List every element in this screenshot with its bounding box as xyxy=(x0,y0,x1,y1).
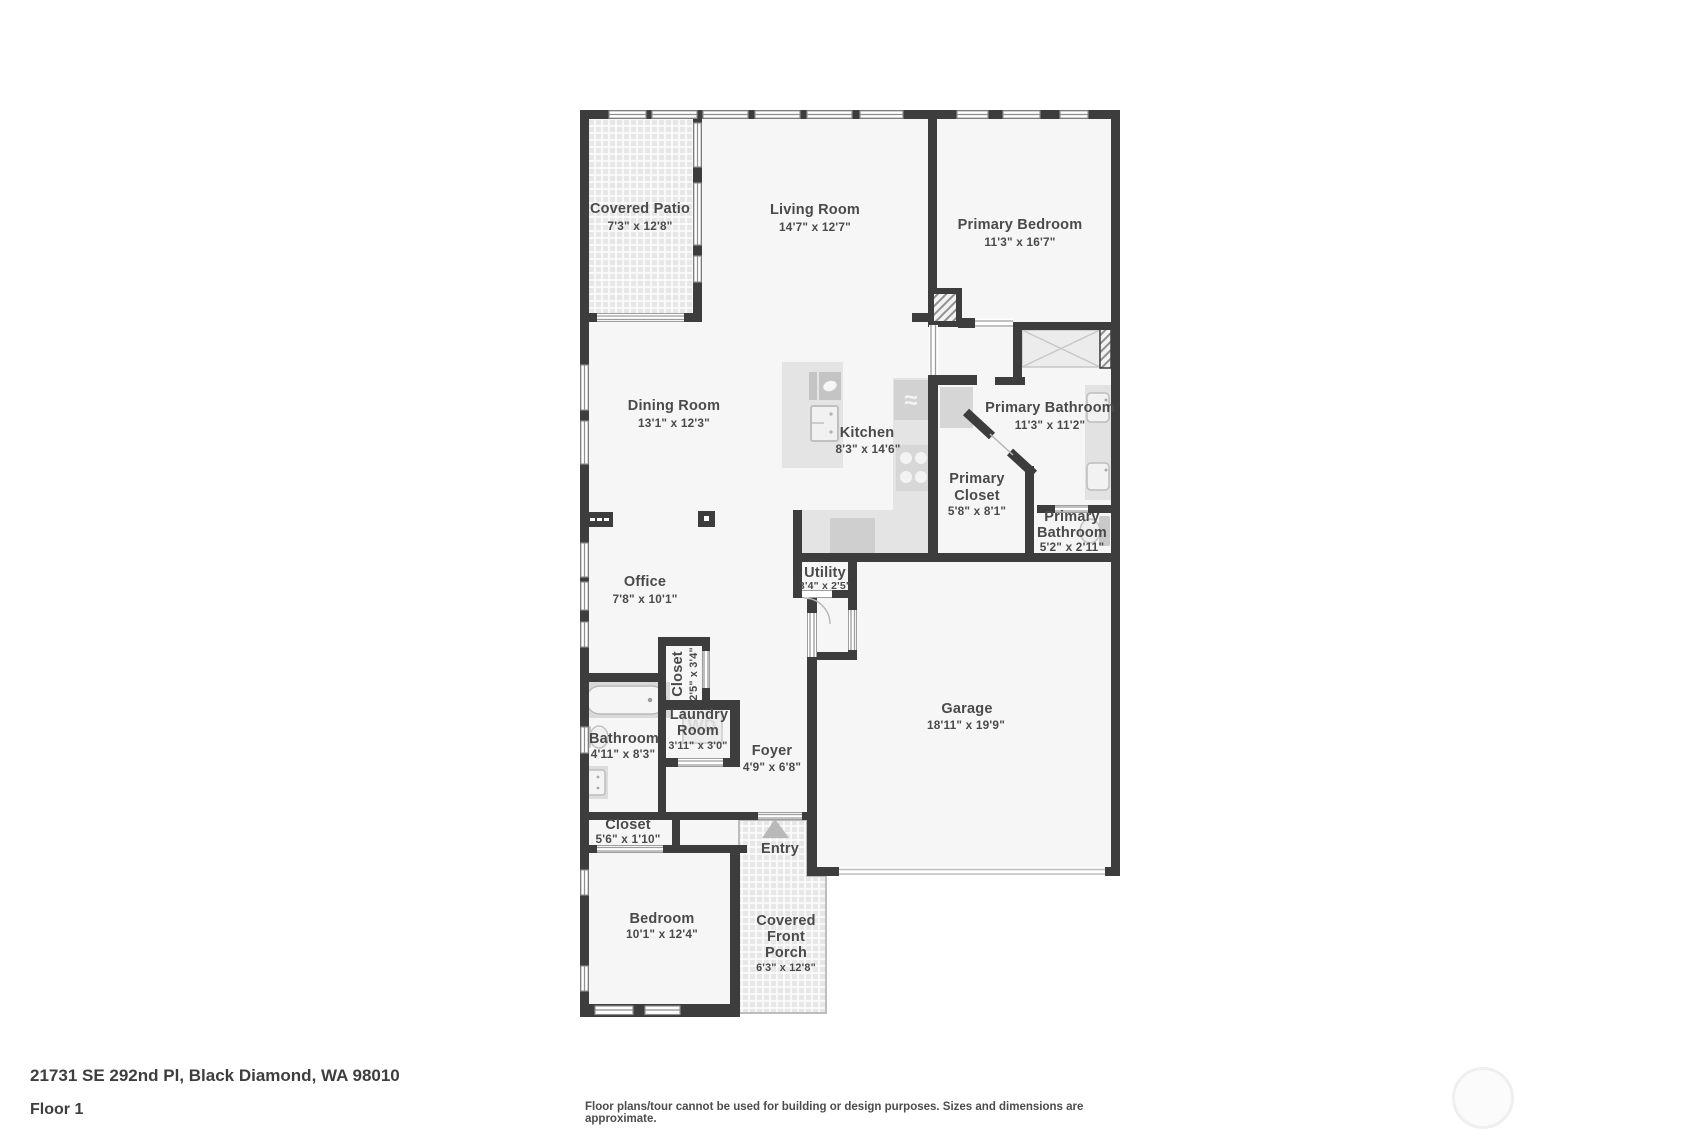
svg-text:Kitchen: Kitchen xyxy=(840,425,895,441)
svg-text:Primary: Primary xyxy=(949,471,1004,487)
svg-text:3'11" x 3'0": 3'11" x 3'0" xyxy=(668,740,727,752)
svg-text:Foyer: Foyer xyxy=(752,743,793,759)
svg-text:5'2" x 2'11": 5'2" x 2'11" xyxy=(1040,540,1104,554)
svg-text:2'5" x 3'4": 2'5" x 3'4" xyxy=(688,647,700,701)
room-label-kitchen: Kitchen 8'3" x 14'6" xyxy=(835,425,900,456)
svg-text:Primary Bedroom: Primary Bedroom xyxy=(958,217,1083,233)
svg-text:Office: Office xyxy=(624,574,666,590)
watermark-circle xyxy=(1452,1067,1514,1129)
floor-label: Floor 1 xyxy=(30,1101,83,1119)
room-label-closet: Closet 2'5" x 3'4" xyxy=(670,647,700,701)
column-post xyxy=(698,511,715,527)
svg-text:Covered: Covered xyxy=(756,913,815,929)
svg-text:Living Room: Living Room xyxy=(770,202,860,218)
svg-text:Closet: Closet xyxy=(954,488,1000,504)
svg-text:7'8" x 10'1": 7'8" x 10'1" xyxy=(612,592,677,606)
svg-text:Bathroom: Bathroom xyxy=(589,731,659,747)
svg-text:18'11" x 19'9": 18'11" x 19'9" xyxy=(927,718,1005,732)
svg-text:5'8" x 8'1": 5'8" x 8'1" xyxy=(948,504,1006,518)
room-label-primary-closet: Primary Closet 5'8" x 8'1" xyxy=(948,471,1006,518)
svg-text:6'3" x 12'8": 6'3" x 12'8" xyxy=(756,962,816,974)
room-label-entry: Entry xyxy=(761,841,799,857)
bathtub xyxy=(582,682,670,718)
floorplan-page: ≈ xyxy=(0,0,1697,1131)
svg-text:Porch: Porch xyxy=(765,945,807,961)
svg-text:Closet: Closet xyxy=(670,651,686,697)
shower xyxy=(1022,324,1111,368)
room-label-utility: Utility 3'4" x 2'5" xyxy=(799,565,851,592)
svg-text:3'4" x 2'5": 3'4" x 2'5" xyxy=(799,580,851,592)
room-label-bathroom: Bathroom 4'11" x 8'3" xyxy=(589,731,659,761)
closet-builtin xyxy=(940,387,973,428)
room-label-bedroom: Bedroom 10'1" x 12'4" xyxy=(626,911,698,941)
kitchen-island xyxy=(782,362,843,468)
svg-text:13'1" x 12'3": 13'1" x 12'3" xyxy=(638,416,710,430)
svg-text:Bathroom: Bathroom xyxy=(1037,525,1107,541)
svg-text:Laundry: Laundry xyxy=(670,707,729,723)
disclaimer-text: Floor plans/tour cannot be used for buil… xyxy=(585,1101,1125,1125)
svg-text:Closet: Closet xyxy=(605,817,651,833)
svg-text:7'3" x 12'8": 7'3" x 12'8" xyxy=(607,219,672,233)
address-text: 21731 SE 292nd Pl, Black Diamond, WA 980… xyxy=(30,1066,400,1086)
svg-text:8'3" x 14'6": 8'3" x 14'6" xyxy=(835,442,900,456)
svg-text:11'3" x 11'2": 11'3" x 11'2" xyxy=(1015,418,1086,432)
svg-text:14'7" x 12'7": 14'7" x 12'7" xyxy=(779,220,851,234)
room-label-primary-bathroom-2: Primary Bathroom 5'2" x 2'11" xyxy=(1037,509,1107,554)
svg-text:4'9" x 6'8": 4'9" x 6'8" xyxy=(743,760,801,774)
svg-text:11'3" x 16'7": 11'3" x 16'7" xyxy=(984,235,1055,249)
svg-text:Bedroom: Bedroom xyxy=(629,911,694,927)
svg-text:4'11" x 8'3": 4'11" x 8'3" xyxy=(591,747,655,761)
svg-text:Garage: Garage xyxy=(941,701,992,717)
svg-text:Primary: Primary xyxy=(1044,509,1099,525)
svg-text:5'6" x 1'10": 5'6" x 1'10" xyxy=(595,832,660,846)
svg-text:Room: Room xyxy=(677,723,719,739)
svg-text:Covered Patio: Covered Patio xyxy=(590,201,690,217)
svg-text:Dining Room: Dining Room xyxy=(628,398,720,414)
svg-text:Front: Front xyxy=(767,929,805,945)
fireplace-hatch xyxy=(934,294,956,321)
svg-text:10'1" x 12'4": 10'1" x 12'4" xyxy=(626,927,698,941)
svg-text:≈: ≈ xyxy=(904,387,917,414)
floorplan-drawing: ≈ xyxy=(0,0,1697,1131)
svg-text:Entry: Entry xyxy=(761,841,799,857)
svg-text:Utility: Utility xyxy=(804,565,846,581)
svg-text:Primary Bathroom: Primary Bathroom xyxy=(985,400,1115,416)
kitchen-lower-counter xyxy=(793,510,930,553)
